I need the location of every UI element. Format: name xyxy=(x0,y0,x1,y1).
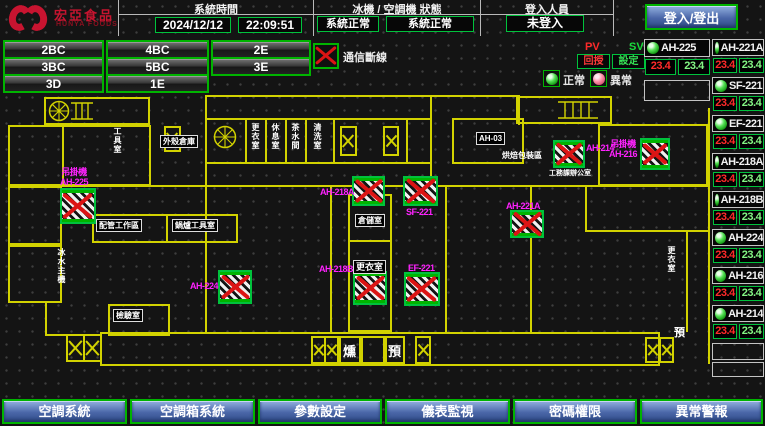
wall xyxy=(708,108,710,364)
floor-button-3d[interactable]: 3D xyxy=(3,74,104,93)
room-label: 鍋爐工具室 xyxy=(172,219,218,232)
unit-sv-value: 23.4 xyxy=(739,286,764,301)
unit-name: AH-224 xyxy=(728,232,763,244)
offline-ahu-icon-ah-214[interactable] xyxy=(553,140,585,168)
unit-cell-sf-221[interactable]: SF-221 xyxy=(712,77,764,94)
nav-button-password-auth[interactable]: 密碼權限 xyxy=(513,399,637,424)
unit-name: AH-225 xyxy=(661,42,696,54)
room-label: AH-03 xyxy=(476,132,505,145)
pv-label: PV xyxy=(585,41,600,53)
wall xyxy=(333,120,335,162)
offline-unit-name: AH-216 xyxy=(608,149,638,159)
unit-cell-ef-221[interactable]: EF-221 xyxy=(712,115,764,132)
offline-ahu-icon-ah-216[interactable] xyxy=(640,138,670,170)
offline-unit-label: AH-218A xyxy=(320,187,354,197)
offline-unit-label: SF-221 xyxy=(406,207,433,217)
unit-name: SF-221 xyxy=(729,80,762,92)
unit-pv-value: 23.4 xyxy=(713,324,737,339)
wall xyxy=(8,245,62,303)
comm-loss-legend-label: 通信斷線 xyxy=(343,49,387,65)
system-clock-value: 22:09:51 xyxy=(238,17,302,33)
offline-unit-prefix: 吊掛機 xyxy=(608,139,638,149)
system-time-label: 系統時間 xyxy=(119,0,313,15)
offline-ahu-icon-ef-221[interactable] xyxy=(404,272,440,306)
unit-name: EF-221 xyxy=(729,118,762,130)
room-label: 冰水主機 xyxy=(56,248,67,292)
offline-unit-prefix: 吊掛機 xyxy=(48,167,100,177)
unit-cell-ah-218a[interactable]: AH-218A xyxy=(712,153,764,170)
unit-led-icon xyxy=(715,194,719,206)
unit-cell-ah-221a[interactable]: AH-221A xyxy=(712,39,764,56)
wall xyxy=(100,364,660,366)
room-label: 工具室 xyxy=(112,127,123,181)
unit-led-icon xyxy=(715,232,726,244)
abnormal-legend-label: 異常 xyxy=(610,72,632,88)
ahu-status-value: 系統正常 xyxy=(386,16,474,32)
offline-ahu-icon-ah-221a[interactable] xyxy=(510,210,544,238)
offline-ahu-icon-ah-218a[interactable] xyxy=(352,176,385,206)
brand-logo: 宏亞食品 HUNYA FOODS xyxy=(8,3,118,35)
room-label: 更衣室 xyxy=(666,246,677,286)
unit-pv-value: 23.4 xyxy=(713,248,737,263)
unit-led-icon xyxy=(647,42,659,54)
floor-button-1e[interactable]: 1E xyxy=(106,74,209,93)
wall xyxy=(265,120,267,162)
wall xyxy=(585,186,587,230)
room-label: 工務課辦公室 xyxy=(549,168,591,178)
room-label: 清洗室 xyxy=(312,123,323,163)
offline-unit-label: AH-224 xyxy=(190,281,218,291)
room-label: 烘焙包裝區 xyxy=(502,150,542,161)
room-label: 更衣室 xyxy=(353,260,386,274)
normal-led-icon xyxy=(543,70,560,87)
nav-button-param-settings[interactable]: 參數設定 xyxy=(258,399,382,424)
unit-led-icon xyxy=(715,308,726,320)
offline-ahu-icon-ah-225[interactable] xyxy=(60,188,96,224)
chiller-status-value: 系統正常 xyxy=(317,16,379,32)
wall xyxy=(205,185,207,332)
stairs-x-icon xyxy=(383,126,399,156)
unit-cell-ah-225[interactable]: AH-225 xyxy=(644,39,710,57)
elevator-x-icon xyxy=(415,336,431,364)
sv-caption: 設定 xyxy=(612,54,645,69)
brand-logo-icon xyxy=(8,3,52,33)
login-label: 登入人員 xyxy=(481,0,613,15)
unit-led-icon xyxy=(715,270,726,282)
wall xyxy=(100,332,660,334)
comm-loss-legend-icon xyxy=(313,43,339,69)
unit-pv-value: 23.4 xyxy=(713,96,737,111)
offline-ahu-icon-sf-221[interactable] xyxy=(403,176,438,206)
unit-cell-ah-214[interactable]: AH-214 xyxy=(712,305,764,322)
wall xyxy=(205,95,520,97)
stairs-x-icon xyxy=(340,126,357,156)
offline-ahu-icon-ah-218b[interactable] xyxy=(353,271,387,305)
unit-sv-value: 23.4 xyxy=(739,134,764,149)
stairs-icon xyxy=(212,123,238,151)
normal-legend-label: 正常 xyxy=(563,72,585,88)
abnormal-led-icon xyxy=(590,70,607,87)
offline-unit-name: AH-225 xyxy=(48,177,100,187)
system-date-value: 2024/12/12 xyxy=(155,17,231,33)
unit-pv-value: 23.4 xyxy=(713,172,737,187)
wall xyxy=(45,334,68,336)
nav-button-hvac-system[interactable]: 空調系統 xyxy=(2,399,127,424)
room-label: 預 xyxy=(388,341,401,360)
wall xyxy=(245,120,247,162)
unit-sv-value: 23.4 xyxy=(739,248,764,263)
nav-button-meter-monitor[interactable]: 儀表監視 xyxy=(385,399,510,424)
unit-sv-value: 23.4 xyxy=(739,96,764,111)
offline-unit-label: EF-221 xyxy=(408,263,435,273)
unit-pv-value: 23.4 xyxy=(713,210,737,225)
unit-cell-empty xyxy=(712,343,764,360)
unit-name: AH-216 xyxy=(728,270,763,282)
room-label: 休息室 xyxy=(270,123,281,163)
room-label: 更衣室 xyxy=(250,123,261,163)
wall xyxy=(8,186,62,245)
wall xyxy=(45,303,47,336)
wall xyxy=(406,120,408,162)
elevator-x-icon xyxy=(659,337,674,363)
unit-name: AH-218A xyxy=(721,156,763,168)
brand-subtitle: HUNYA FOODS xyxy=(56,21,118,28)
room-label: 配管工作區 xyxy=(96,219,142,232)
unit-led-icon xyxy=(715,156,719,168)
unit-name: AH-218B xyxy=(721,194,763,206)
room-label: 預 xyxy=(674,324,685,340)
nav-button-alarm[interactable]: 異常警報 xyxy=(640,399,763,424)
unit-led-icon xyxy=(715,42,719,54)
floor-button-3e[interactable]: 3E xyxy=(211,57,311,76)
login-logout-button[interactable]: 登入/登出 xyxy=(645,4,738,30)
pv-caption: 回授 xyxy=(577,54,610,69)
wall xyxy=(305,120,307,162)
unit-name: AH-214 xyxy=(728,308,763,320)
unit-sv-value: 23.4 xyxy=(739,172,764,187)
unit-led-icon xyxy=(715,118,727,130)
wall xyxy=(166,216,168,241)
unit-cell-ah-216[interactable]: AH-216 xyxy=(712,267,764,284)
elevator-x-icon xyxy=(645,337,660,363)
unit-pv-value: 23.4 xyxy=(713,58,737,73)
stairs-icon xyxy=(48,99,96,123)
offline-unit-label: AH-221A xyxy=(506,201,540,211)
wall xyxy=(585,230,708,232)
unit-pv-value: 23.4 xyxy=(713,134,737,149)
unit-cell-ah-218b[interactable]: AH-218B xyxy=(712,191,764,208)
room-label: 外殼倉庫 xyxy=(160,135,198,148)
elevator-x-icon xyxy=(83,334,102,362)
unit-led-icon xyxy=(715,80,727,92)
wall xyxy=(445,186,447,332)
unit-sv-value: 23.4 xyxy=(739,324,764,339)
machine-status-label: 冰機 / 空調機 狀態 xyxy=(314,0,480,15)
offline-ahu-icon-ah-224[interactable] xyxy=(218,270,252,304)
room-label: 燻 xyxy=(343,341,356,360)
room-label: 茶水間 xyxy=(290,123,301,163)
login-status-value: 未登入 xyxy=(506,15,584,32)
unit-pv-value: 23.4 xyxy=(645,59,676,75)
elevator-x-icon xyxy=(324,336,339,364)
unit-cell-ah-224[interactable]: AH-224 xyxy=(712,229,764,246)
unit-sv-value: 23.4 xyxy=(739,210,764,225)
unit-pv-value: 23.4 xyxy=(713,286,737,301)
nav-button-ahu-system[interactable]: 空調箱系統 xyxy=(130,399,255,424)
offline-unit-label: 吊掛機 AH-225 xyxy=(48,167,100,187)
unit-sv-value: 23.4 xyxy=(678,59,710,75)
offline-unit-label: AH-218B xyxy=(319,264,353,274)
room-cell xyxy=(361,336,385,364)
room-label: 倉儲室 xyxy=(355,214,385,227)
unit-cell-empty xyxy=(644,80,710,101)
wall xyxy=(330,186,332,332)
sv-label: SV xyxy=(629,41,644,53)
offline-unit-label: 吊掛機 AH-216 xyxy=(608,139,638,159)
room-label: 檢驗室 xyxy=(113,309,143,322)
unit-cell-empty xyxy=(712,362,764,377)
wall xyxy=(686,232,688,332)
wall xyxy=(285,120,287,162)
wall xyxy=(350,240,390,242)
stairs-icon xyxy=(556,100,600,120)
unit-sv-value: 23.4 xyxy=(739,58,764,73)
unit-name: AH-221A xyxy=(721,42,763,54)
hmi-screen: 宏亞食品 HUNYA FOODS 系統時間 2024/12/12 22:09:5… xyxy=(0,0,765,426)
